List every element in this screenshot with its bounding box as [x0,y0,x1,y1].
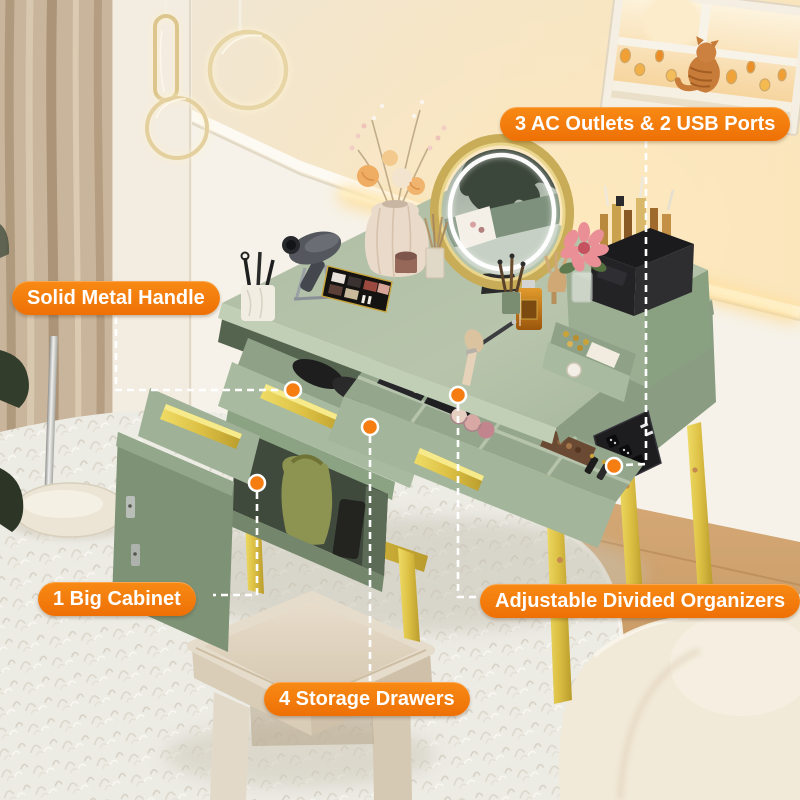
cream-jar [395,252,417,274]
annotated-product-photo: 3 AC Outlets & 2 USB Ports Solid Metal H… [0,0,800,800]
connector-dot [606,458,622,474]
callout-storage-drawers: 4 Storage Drawers [264,682,470,716]
callout-ac-usb-ports: 3 AC Outlets & 2 USB Ports [500,107,790,141]
callout-divided-organizers: Adjustable Divided Organizers [480,584,800,618]
connector-dot [249,475,265,491]
connector-dot [285,382,301,398]
connector-dot [362,419,378,435]
callout-solid-metal-handle: Solid Metal Handle [12,281,220,315]
connector-dot [450,387,466,403]
handbag [281,456,332,545]
drawer-knob [567,363,581,377]
callout-big-cabinet: 1 Big Cabinet [38,582,196,616]
